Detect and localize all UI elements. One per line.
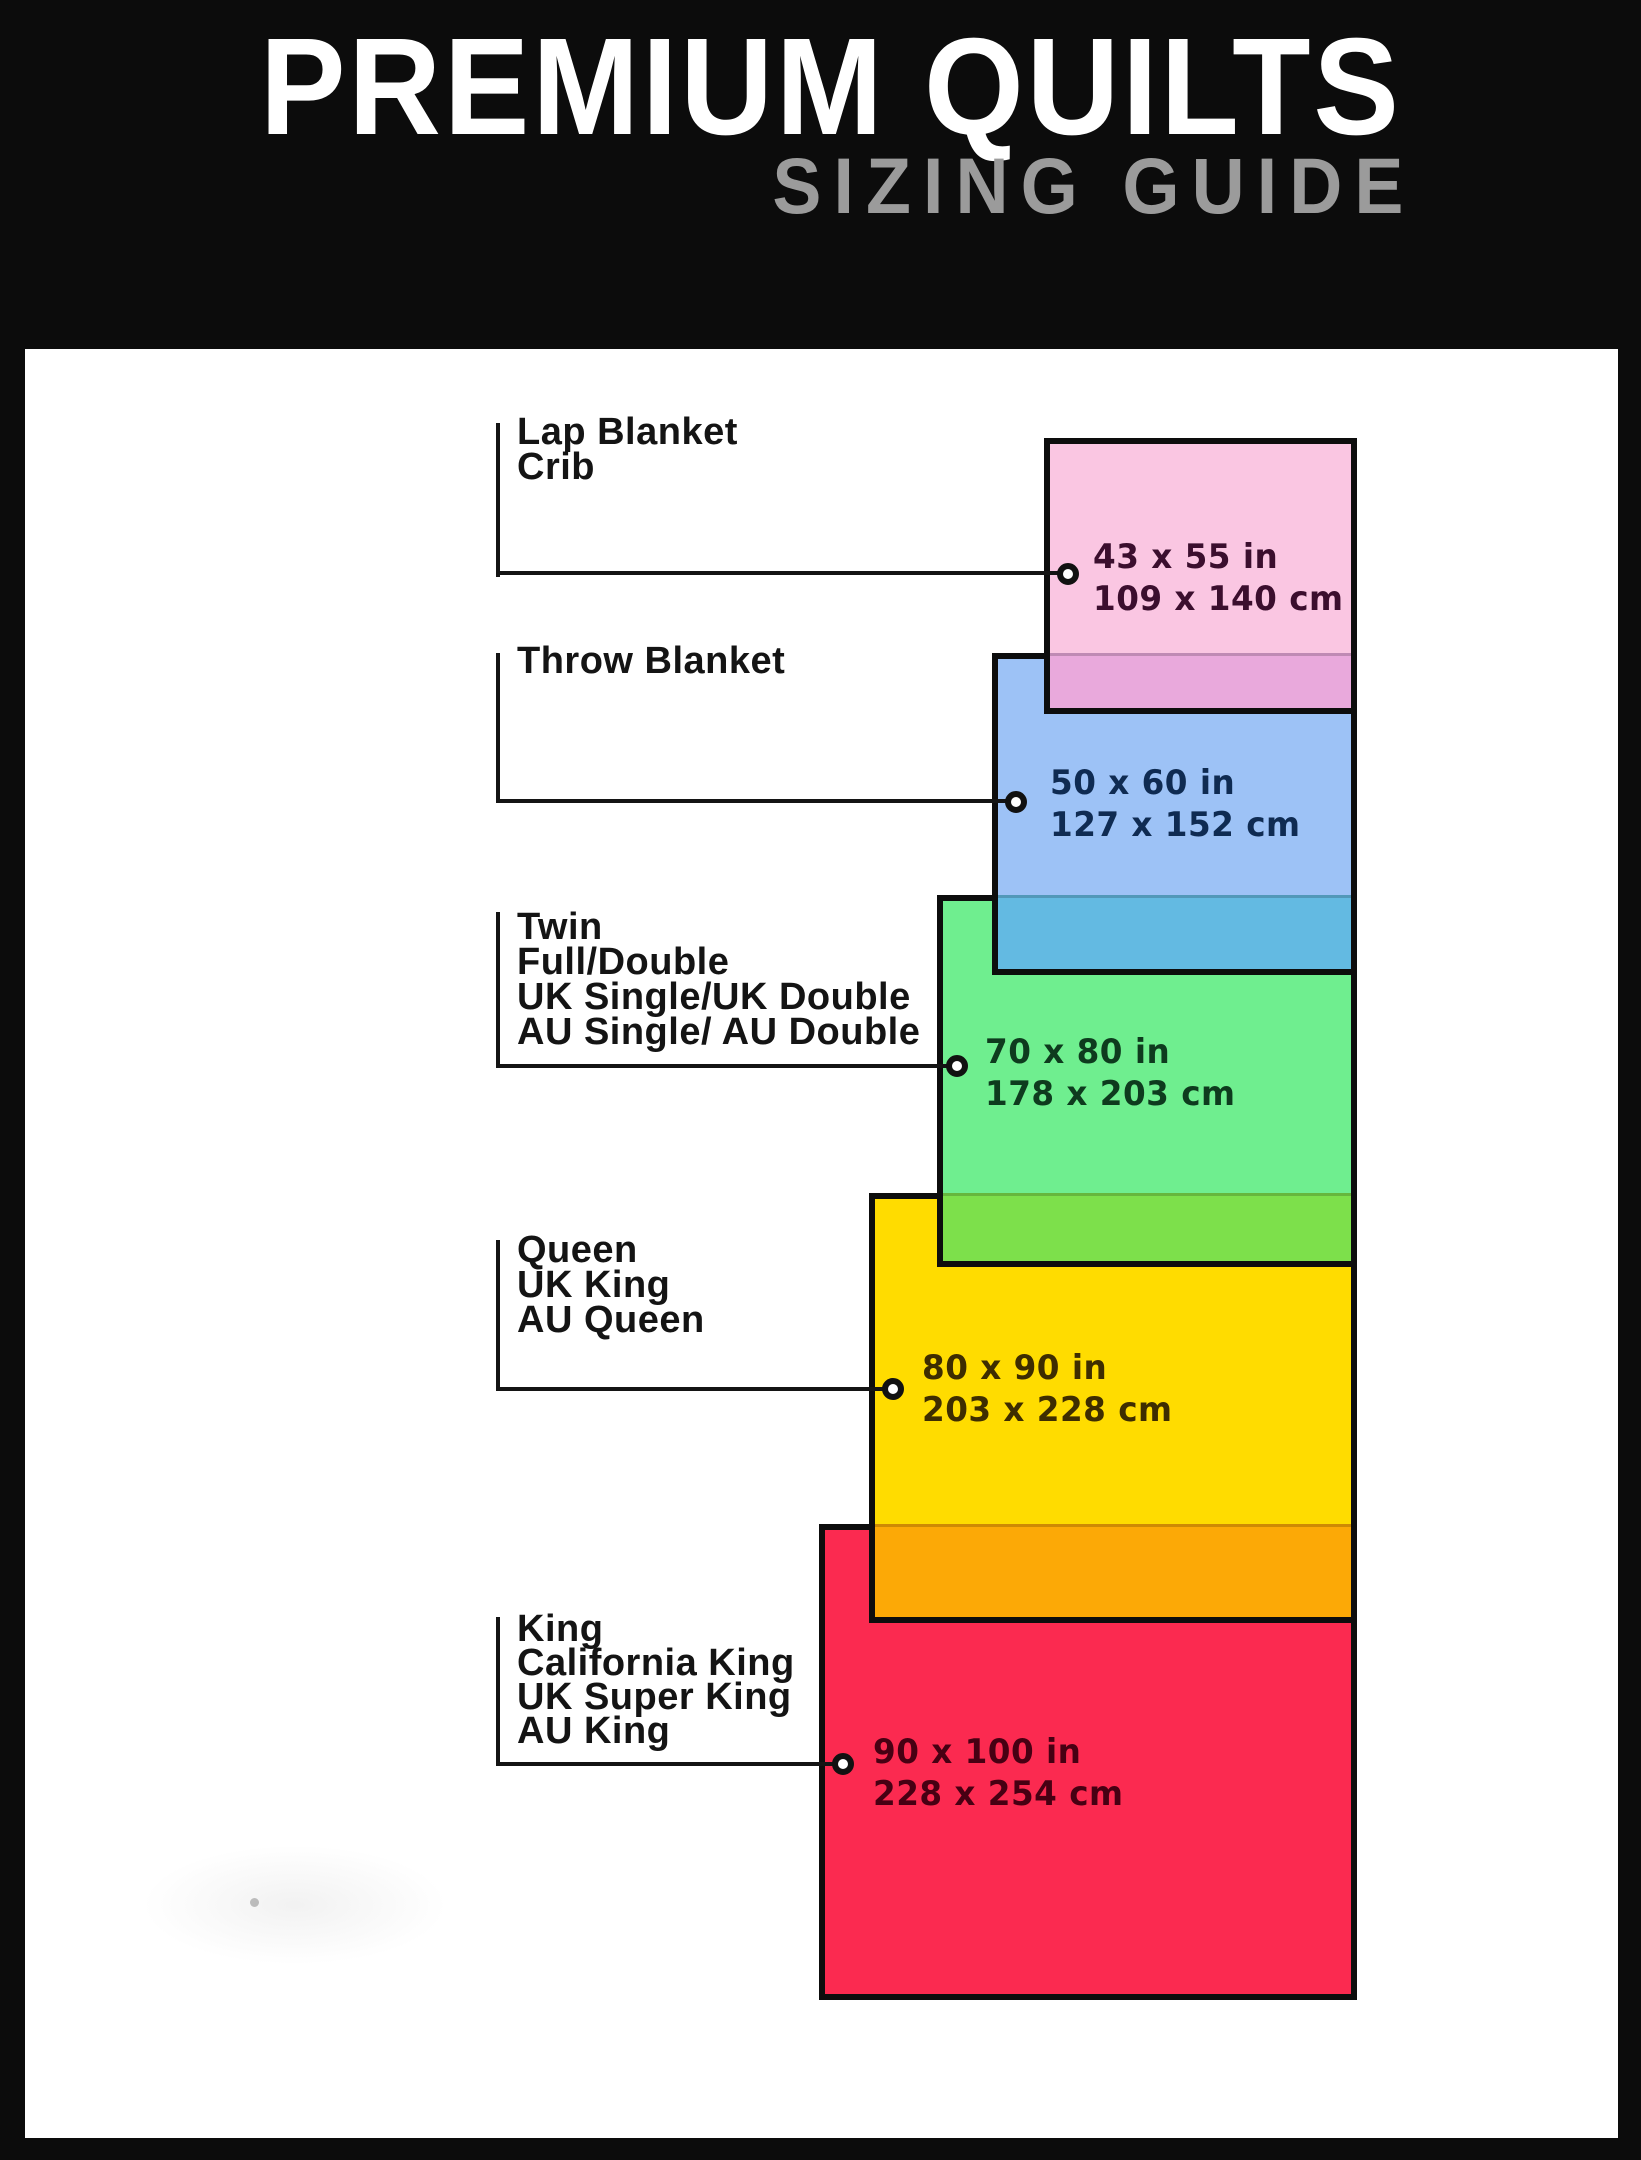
overlap-lap-throw [1050, 653, 1351, 708]
label-line: AU Queen [517, 1303, 705, 1338]
label-line: Full/Double [517, 945, 920, 980]
leader-line [496, 1387, 883, 1391]
label-line: Twin [517, 910, 920, 945]
leader-line [496, 423, 500, 577]
label-line: AU Single/ AU Double [517, 1015, 920, 1050]
paper-smudge [130, 1840, 460, 1970]
overlap-twin-queen [943, 1193, 1351, 1261]
overlap-throw-twin [998, 895, 1351, 969]
leader-line [496, 912, 500, 1068]
label-line: Lap Blanket [517, 415, 738, 450]
label-king: King California King UK Super King AU Ki… [517, 1612, 795, 1748]
leader-dot-icon [1057, 563, 1079, 585]
dims-king: 90 x 100 in 228 x 254 cm [873, 1731, 1124, 1815]
label-throw-blanket: Throw Blanket [517, 644, 785, 679]
label-twin: Twin Full/Double UK Single/UK Double AU … [517, 910, 920, 1050]
paper-dot [250, 1898, 259, 1907]
dims-inches: 90 x 100 in [873, 1731, 1124, 1773]
frame-left-border [0, 0, 25, 2160]
leader-dot-icon [882, 1378, 904, 1400]
dims-throw-blanket: 50 x 60 in 127 x 152 cm [1050, 762, 1301, 846]
leader-dot-icon [832, 1753, 854, 1775]
page-subtitle: SIZING GUIDE [772, 146, 1415, 225]
label-line: UK Super King [517, 1680, 795, 1714]
dims-twin: 70 x 80 in 178 x 203 cm [985, 1031, 1236, 1115]
label-lap-blanket-crib: Lap Blanket Crib [517, 415, 738, 485]
dims-inches: 50 x 60 in [1050, 762, 1301, 804]
leader-line [496, 653, 500, 803]
leader-line [496, 1240, 500, 1391]
label-line: Queen [517, 1233, 705, 1268]
dims-cm: 178 x 203 cm [985, 1073, 1236, 1115]
dims-queen: 80 x 90 in 203 x 228 cm [922, 1347, 1173, 1431]
label-line: Crib [517, 450, 738, 485]
label-line: Throw Blanket [517, 644, 785, 679]
label-line: California King [517, 1646, 795, 1680]
leader-line [496, 571, 1058, 575]
dims-inches: 43 x 55 in [1093, 536, 1344, 578]
dims-cm: 109 x 140 cm [1093, 578, 1344, 620]
dims-cm: 127 x 152 cm [1050, 804, 1301, 846]
leader-line [496, 1617, 500, 1766]
dims-lap-blanket-crib: 43 x 55 in 109 x 140 cm [1093, 536, 1344, 620]
leader-line [496, 1762, 833, 1766]
frame-bottom-border [0, 2138, 1641, 2160]
label-line: UK Single/UK Double [517, 980, 920, 1015]
leader-line [496, 1064, 947, 1068]
frame-right-border [1618, 0, 1641, 2160]
label-line: AU King [517, 1714, 795, 1748]
page-title: PREMIUM QUILTS [260, 18, 1402, 156]
label-queen: Queen UK King AU Queen [517, 1233, 705, 1338]
leader-line [496, 799, 1006, 803]
dims-inches: 80 x 90 in [922, 1347, 1173, 1389]
leader-dot-icon [946, 1055, 968, 1077]
label-line: King [517, 1612, 795, 1646]
overlap-queen-king [875, 1524, 1351, 1617]
leader-dot-icon [1005, 791, 1027, 813]
dims-cm: 228 x 254 cm [873, 1773, 1124, 1815]
dims-cm: 203 x 228 cm [922, 1389, 1173, 1431]
dims-inches: 70 x 80 in [985, 1031, 1236, 1073]
label-line: UK King [517, 1268, 705, 1303]
